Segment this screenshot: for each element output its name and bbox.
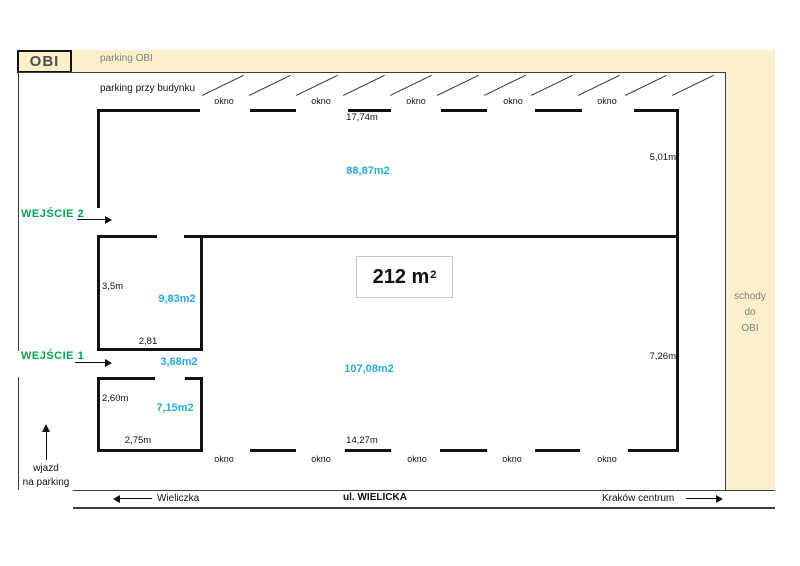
parking-stripe: [390, 75, 432, 96]
entrance-2-arrow-line: [77, 219, 105, 220]
parking-obi-label: parking OBI: [100, 53, 153, 65]
obi-store-box: OBI: [17, 50, 72, 73]
wall-segment: [440, 449, 487, 452]
street-lower-line: [73, 507, 775, 509]
stairs-label-line1: schody: [725, 291, 775, 303]
parking-stripe: [437, 75, 479, 96]
window-label: okno: [498, 96, 528, 106]
parking-stripe: [484, 75, 526, 96]
site-boundary-left-upper: [18, 72, 19, 351]
dim-bottom-width: 14,27m: [338, 435, 386, 446]
stairs-strip: [725, 72, 775, 490]
wall-segment: [97, 109, 100, 208]
dim-room-bottom-height: 2,60m: [102, 393, 128, 404]
parking-stripe: [578, 75, 620, 96]
window-label: okno: [497, 454, 527, 464]
stairs-label-line2: do: [725, 307, 775, 319]
obi-label: OBI: [30, 53, 60, 70]
dim-room-top-width: 2,81: [128, 336, 168, 347]
driveway-label-line2: na parking: [14, 477, 78, 489]
wall-segment: [441, 109, 487, 112]
driveway-label-line1: wjazd: [20, 463, 72, 475]
wall-segment: [97, 377, 100, 452]
window-label: okno: [209, 96, 239, 106]
wall-segment: [97, 109, 200, 112]
driveway-arrow-line: [46, 432, 47, 460]
area-upper-room: 88,87m2: [328, 165, 408, 177]
parking-stripe: [625, 75, 667, 96]
entrance-2-label: WEJŚCIE 2: [21, 208, 84, 220]
street-west-arrowhead-icon: [113, 495, 120, 503]
wall-segment: [250, 109, 296, 112]
street-east-arrow-line: [686, 498, 716, 499]
dim-upper-right-height: 5,01m: [642, 152, 676, 163]
stairs-label-line3: OBI: [725, 323, 775, 335]
wall-segment: [97, 235, 100, 351]
entrance-1-arrowhead-icon: [105, 359, 112, 367]
street-east-label: Kraków centrum: [602, 493, 674, 505]
parking-stripe: [296, 75, 338, 96]
site-boundary-left-lower: [18, 377, 19, 490]
wall-segment: [97, 348, 203, 351]
total-area-value: 212 m: [373, 266, 430, 289]
wall-segment: [200, 377, 203, 452]
wall-segment: [676, 109, 679, 452]
wall-segment: [535, 449, 580, 452]
window-label: okno: [592, 454, 622, 464]
street-west-arrow-line: [120, 498, 152, 499]
dim-top-width: 17,74m: [338, 112, 386, 123]
parking-stripe: [531, 75, 573, 96]
window-label: okno: [401, 96, 431, 106]
wall-segment: [97, 449, 203, 452]
window-label: okno: [209, 454, 239, 464]
window-label: okno: [306, 454, 336, 464]
dim-lower-right-height: 7,26m: [642, 351, 676, 362]
entrance-2-arrowhead-icon: [105, 216, 112, 224]
window-label: okno: [592, 96, 622, 106]
total-area-box: 212 m2: [356, 256, 453, 298]
area-top-room: 9,83m2: [137, 293, 217, 305]
wall-segment: [345, 449, 391, 452]
driveway-arrowhead-icon: [42, 424, 50, 432]
parking-obi-bar: [72, 50, 775, 72]
floor-plan: OBI parking OBI parking przy budynku okn…: [0, 0, 800, 566]
dim-room-bottom-width: 2,75m: [116, 435, 160, 446]
parking-stripe: [249, 75, 291, 96]
wall-segment: [250, 449, 296, 452]
area-corridor: 3,68m2: [139, 356, 219, 368]
wall-segment: [184, 235, 679, 238]
parking-stripe: [343, 75, 385, 96]
area-lower-room: 107,08m2: [329, 363, 409, 375]
site-boundary-top: [18, 72, 725, 73]
wall-segment: [535, 109, 582, 112]
street-name-label: ul. WIELICKA: [340, 492, 410, 504]
parking-stripe: [202, 75, 244, 96]
wall-segment: [634, 109, 679, 112]
dim-room-top-height: 3,5m: [102, 281, 123, 292]
area-bottom-room: 7,15m2: [135, 402, 215, 414]
window-label: okno: [306, 96, 336, 106]
building-parking-label: parking przy budynku: [100, 83, 195, 95]
wall-segment: [97, 235, 157, 238]
wall-segment: [628, 449, 679, 452]
wall-segment: [97, 377, 155, 380]
street-west-label: Wieliczka: [157, 493, 199, 505]
entrance-1-label: WEJŚCIE 1: [21, 350, 84, 362]
site-boundary-bottom-street-line: [73, 490, 775, 491]
window-label: okno: [402, 454, 432, 464]
entrance-1-arrow-line: [75, 362, 105, 363]
parking-stripe: [672, 75, 714, 96]
street-east-arrowhead-icon: [716, 495, 723, 503]
total-area-sup: 2: [430, 269, 436, 281]
